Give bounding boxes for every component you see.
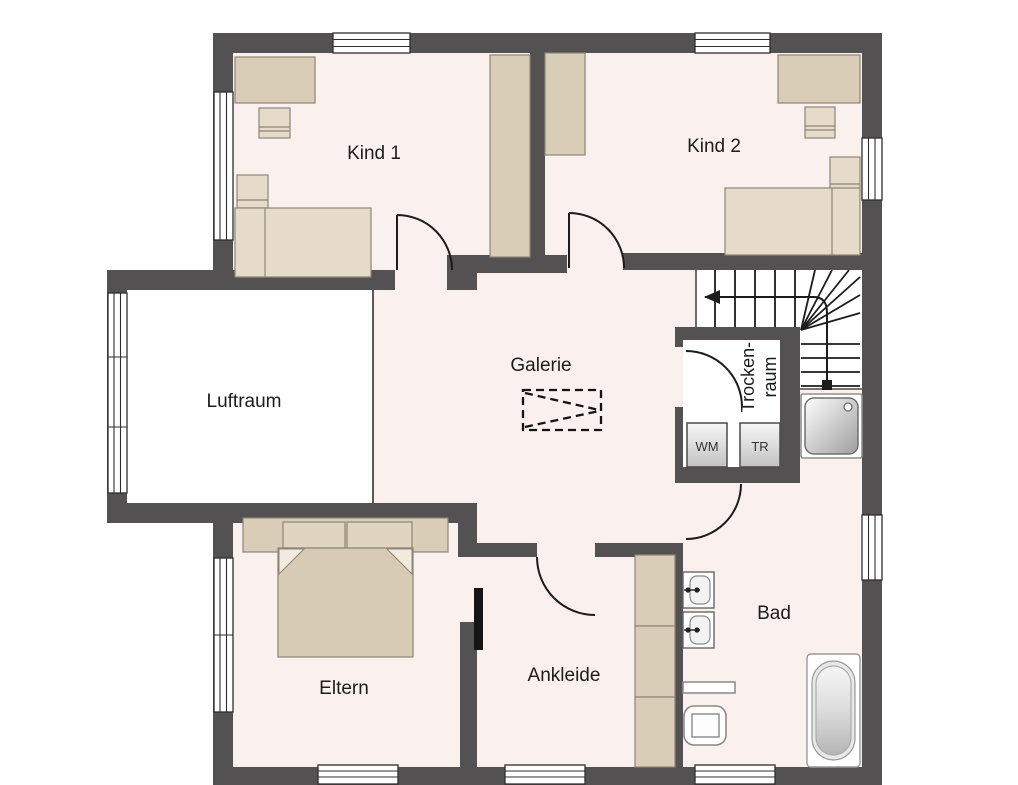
wardrobe-ankleide-3 xyxy=(635,697,675,767)
label-galerie: Galerie xyxy=(510,355,571,376)
window-luftraum-left xyxy=(108,293,127,493)
wall-segment xyxy=(675,340,683,347)
wall-segment xyxy=(458,503,477,557)
bed-eltern xyxy=(278,548,413,657)
dryer: TR xyxy=(740,423,780,467)
wall-segment xyxy=(213,33,882,53)
wall-segment xyxy=(675,467,800,483)
toilet xyxy=(684,706,726,745)
wall-segment xyxy=(530,53,545,255)
floor-plan: WM TR xyxy=(0,0,1018,785)
window-eltern-bottom xyxy=(318,765,398,784)
bathtub xyxy=(807,654,860,767)
shower-drain xyxy=(844,403,852,411)
chair-kind2 xyxy=(805,107,835,138)
pillow-eltern-right xyxy=(347,522,412,548)
wall-segment xyxy=(780,340,800,483)
window-bad-bottom xyxy=(695,765,775,784)
window-bad-right xyxy=(862,515,882,580)
window-ankleide-bottom xyxy=(505,765,585,784)
washing-machine-label: WM xyxy=(695,439,718,454)
nightstand-kind1 xyxy=(237,175,268,208)
bed-kind1 xyxy=(235,208,371,277)
wall-segment xyxy=(477,255,567,273)
floor-plan-svg: WM TR xyxy=(0,0,1018,785)
stair-start-marker xyxy=(822,380,832,390)
wall-segment xyxy=(477,543,537,557)
wardrobe-ankleide-1 xyxy=(635,555,675,626)
sink-1 xyxy=(683,572,714,608)
wall-segment xyxy=(675,327,800,340)
gallery-edge-line xyxy=(372,290,374,503)
pillow-eltern-left xyxy=(283,522,345,548)
label-bad: Bad xyxy=(757,603,791,624)
window-eltern-left xyxy=(214,558,233,712)
wall-segment xyxy=(675,543,683,767)
bed-kind2 xyxy=(725,188,860,255)
label-trockenraum-line2: raum xyxy=(760,356,780,397)
wall-segment xyxy=(675,407,683,467)
window-kind2-top xyxy=(695,33,770,53)
label-luftraum: Luftraum xyxy=(207,391,282,412)
desk-kind1 xyxy=(235,57,315,103)
label-kind2: Kind 2 xyxy=(687,136,741,157)
window-kind2-right xyxy=(862,138,882,200)
wardrobe-ankleide-2 xyxy=(635,626,675,697)
label-eltern: Eltern xyxy=(319,678,369,699)
desk-kind2 xyxy=(778,55,860,103)
sliding-door-eltern xyxy=(474,588,483,650)
window-kind1-left xyxy=(214,92,233,240)
chair-kind1 xyxy=(259,108,290,138)
bath-shelf xyxy=(683,682,735,693)
dryer-label: TR xyxy=(751,439,768,454)
label-kind1: Kind 1 xyxy=(347,143,401,164)
label-trockenraum-line1: Trocken- xyxy=(738,342,758,412)
label-ankleide: Ankleide xyxy=(528,665,601,686)
shower xyxy=(801,394,862,458)
wardrobe-kind1 xyxy=(490,55,530,257)
sink-2 xyxy=(683,612,714,648)
window-kind1-top xyxy=(333,33,410,53)
nightstand-kind2 xyxy=(830,157,860,190)
washing-machine: WM xyxy=(687,423,727,467)
wardrobe-kind2 xyxy=(545,53,585,155)
